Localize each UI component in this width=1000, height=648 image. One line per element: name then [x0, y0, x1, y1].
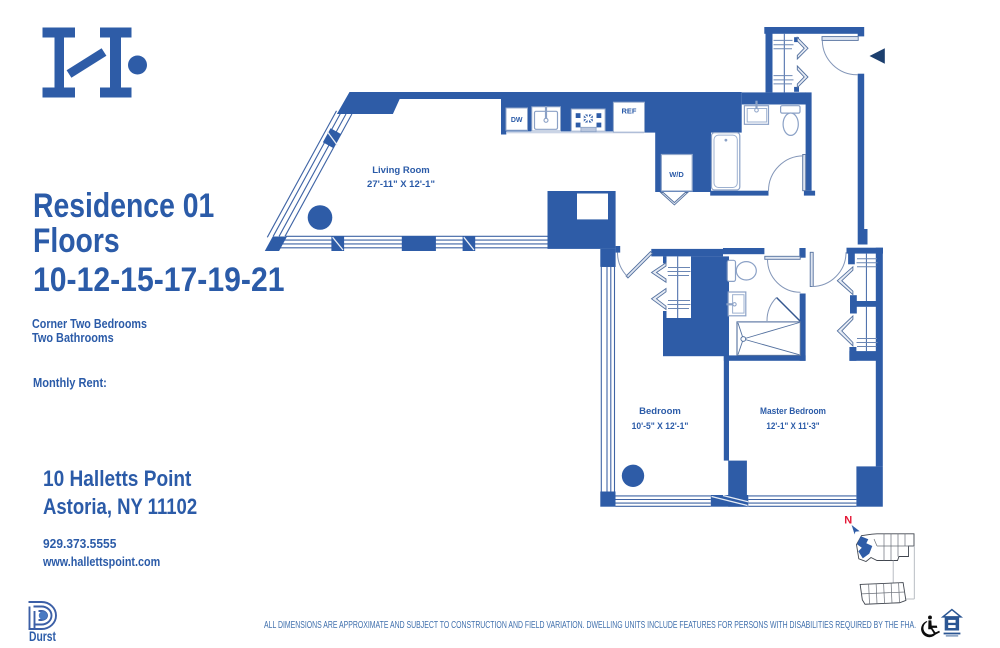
svg-text:W/D: W/D [669, 170, 684, 179]
svg-text:REF: REF [622, 107, 637, 116]
svg-text:DW: DW [511, 117, 523, 124]
